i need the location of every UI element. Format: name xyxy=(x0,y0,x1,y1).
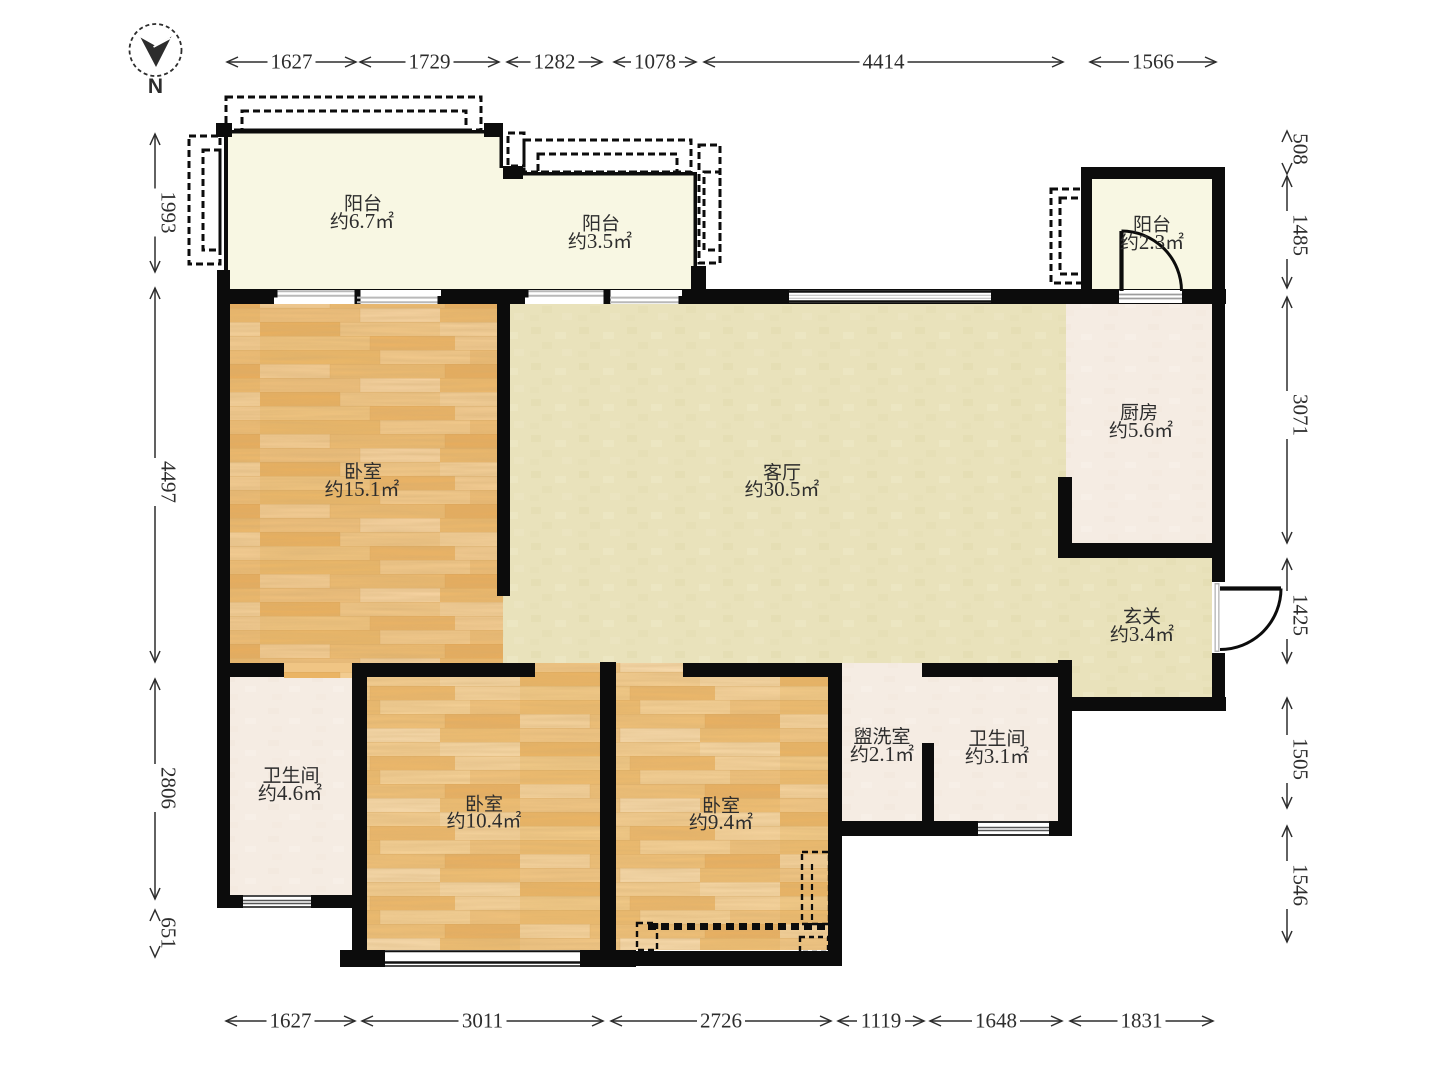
svg-text:1119: 1119 xyxy=(861,1009,901,1033)
svg-text:3.1: 3.1 xyxy=(984,744,1010,768)
svg-text:1485: 1485 xyxy=(1289,214,1313,256)
svg-text:9.4: 9.4 xyxy=(708,810,735,834)
svg-text:6.7: 6.7 xyxy=(349,209,375,233)
svg-text:2.3: 2.3 xyxy=(1139,230,1165,254)
svg-text:1546: 1546 xyxy=(1289,864,1313,906)
svg-text:1729: 1729 xyxy=(409,50,451,74)
svg-text:508: 508 xyxy=(1289,133,1313,165)
svg-text:1831: 1831 xyxy=(1121,1009,1163,1033)
svg-text:1425: 1425 xyxy=(1289,594,1313,636)
svg-text:1282: 1282 xyxy=(534,50,576,74)
svg-text:3.4: 3.4 xyxy=(1129,622,1156,646)
svg-text:2.1: 2.1 xyxy=(869,742,895,766)
svg-text:3071: 3071 xyxy=(1289,394,1313,436)
svg-text:10.4: 10.4 xyxy=(466,809,503,833)
svg-text:1993: 1993 xyxy=(157,192,181,234)
svg-text:15.1: 15.1 xyxy=(344,477,381,501)
svg-text:2726: 2726 xyxy=(700,1009,742,1033)
svg-text:5.6: 5.6 xyxy=(1128,418,1154,442)
svg-text:2806: 2806 xyxy=(157,767,181,809)
svg-text:N: N xyxy=(148,75,163,98)
svg-text:4414: 4414 xyxy=(863,50,906,74)
svg-text:1566: 1566 xyxy=(1132,50,1174,74)
svg-text:1627: 1627 xyxy=(271,50,313,74)
svg-text:30.5: 30.5 xyxy=(764,477,801,501)
svg-text:3011: 3011 xyxy=(462,1009,503,1033)
svg-text:4497: 4497 xyxy=(157,461,181,503)
svg-text:1627: 1627 xyxy=(270,1009,312,1033)
svg-text:4.6: 4.6 xyxy=(277,781,303,805)
svg-text:651: 651 xyxy=(157,917,181,949)
svg-text:1078: 1078 xyxy=(634,50,676,74)
svg-text:1505: 1505 xyxy=(1289,738,1313,780)
svg-text:3.5: 3.5 xyxy=(587,229,613,253)
svg-text:1648: 1648 xyxy=(975,1009,1017,1033)
